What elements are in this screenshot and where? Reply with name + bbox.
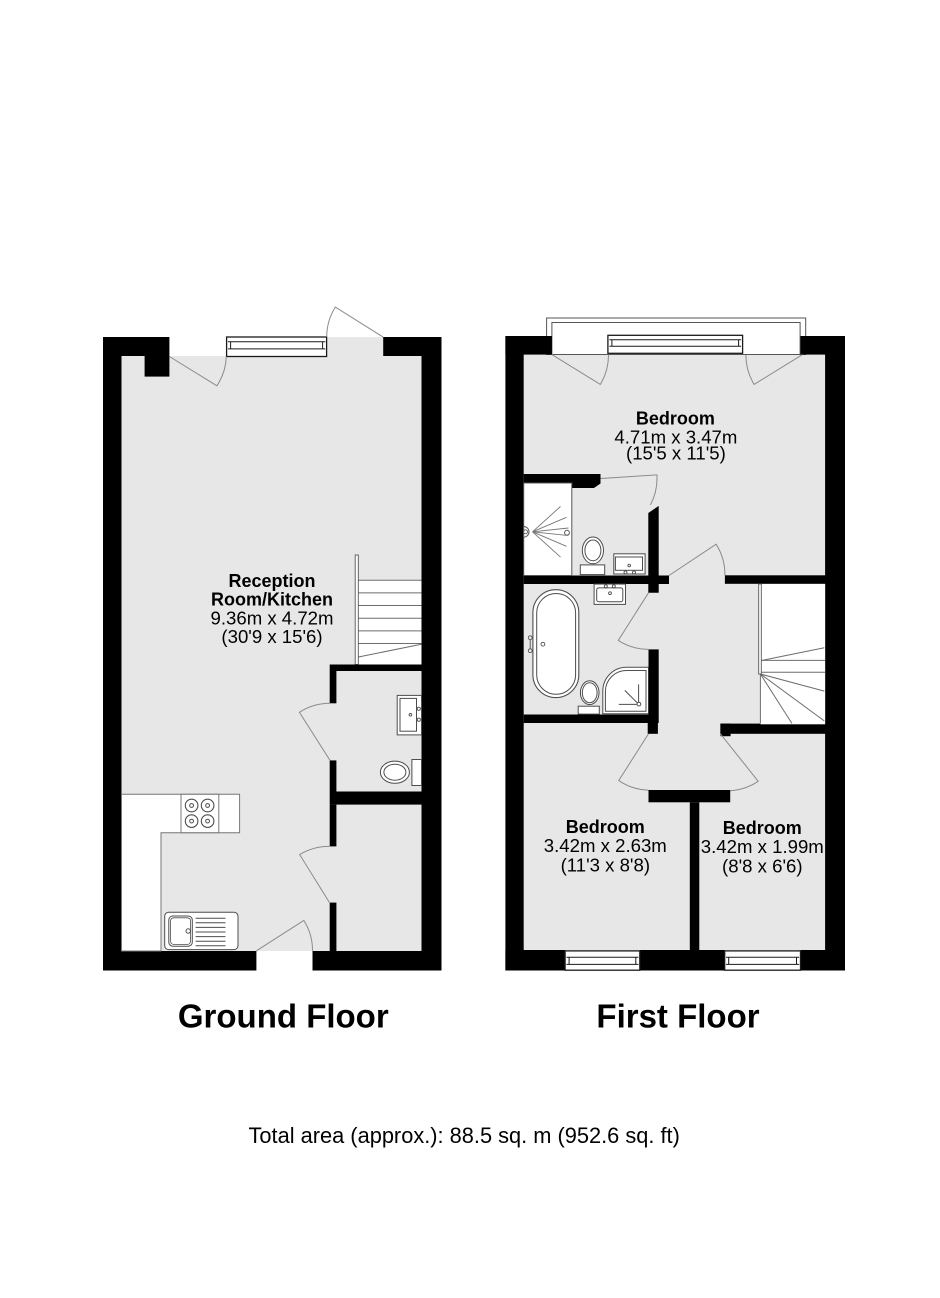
svg-text:Reception: Reception — [228, 571, 315, 591]
svg-text:(8'8 x 6'6): (8'8 x 6'6) — [722, 855, 802, 876]
svg-text:(30'9 x 15'6): (30'9 x 15'6) — [221, 626, 322, 647]
svg-text:(11'3 x 8'8): (11'3 x 8'8) — [561, 854, 650, 875]
svg-text:3.42m x 2.63m: 3.42m x 2.63m — [544, 835, 667, 856]
svg-text:First Floor: First Floor — [596, 998, 759, 1035]
svg-text:Bedroom: Bedroom — [723, 818, 802, 838]
svg-text:(15'5 x 11'5): (15'5 x 11'5) — [626, 443, 726, 464]
svg-text:Bedroom: Bedroom — [636, 408, 715, 428]
svg-text:Bedroom: Bedroom — [566, 817, 645, 837]
svg-text:Total area (approx.): 88.5 sq.: Total area (approx.): 88.5 sq. m (952.6 … — [249, 1123, 680, 1148]
svg-text:3.42m x 1.99m: 3.42m x 1.99m — [701, 836, 824, 857]
svg-text:Ground Floor: Ground Floor — [178, 998, 389, 1035]
